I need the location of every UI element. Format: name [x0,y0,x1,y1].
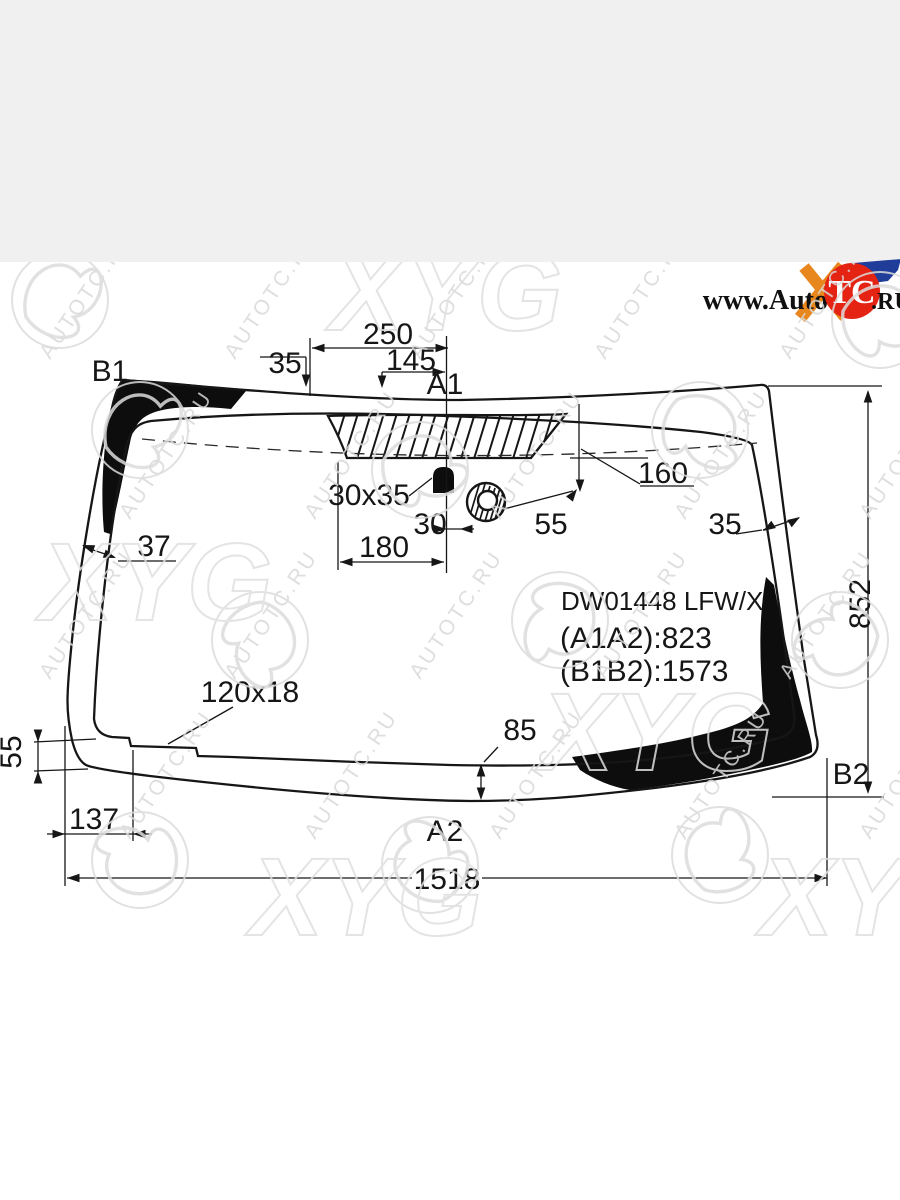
watermark: XYG [754,836,900,959]
logo-text-suffix: .RU [871,289,900,315]
mirror-mount [433,467,454,493]
watermark: AUTOTC.RU [405,546,507,682]
label-b1: B1 [92,355,129,388]
dim-top-offset-35: 35 [268,347,301,380]
label-b2: B2 [833,758,870,791]
dim-bottom-85: 85 [503,714,536,747]
watermark: AUTOTC.RU [855,386,900,522]
top-gray-band [0,0,900,262]
windshield-diagram-page: www.Auto TC .RU [0,0,900,1200]
diagram-canvas: www.Auto TC .RU [0,0,900,1200]
dim-corner-55: 55 [0,735,28,768]
watermark: XYG [244,836,482,959]
dim-span-180: 180 [359,531,409,564]
watermark: AUTOTC.RU [300,706,402,842]
dim-sensor-55: 55 [534,508,567,541]
watermark: AUTOTC.RU [670,386,772,522]
dim-right-edge-35: 35 [708,508,741,541]
